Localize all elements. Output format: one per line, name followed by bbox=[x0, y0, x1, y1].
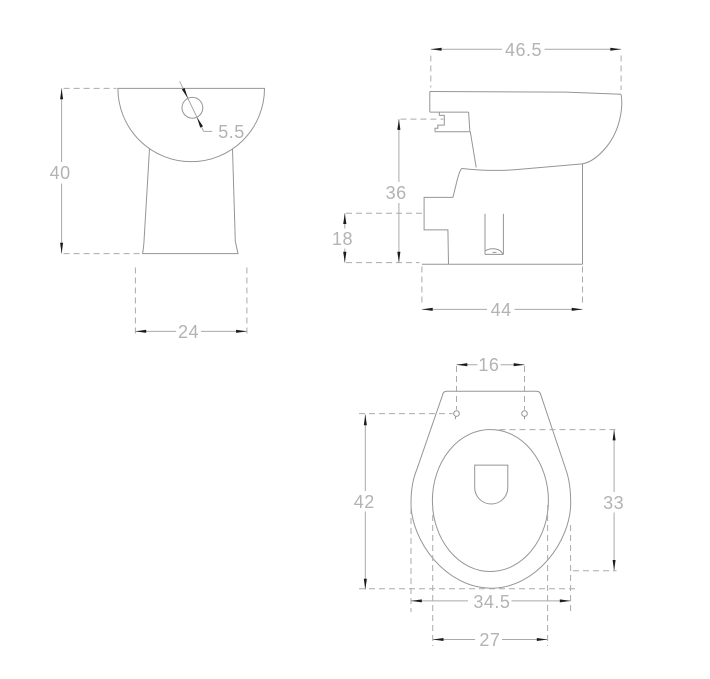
svg-text:27: 27 bbox=[479, 630, 500, 650]
svg-text:42: 42 bbox=[354, 492, 375, 512]
svg-text:36: 36 bbox=[386, 183, 407, 203]
svg-text:34.5: 34.5 bbox=[473, 592, 510, 612]
svg-text:16: 16 bbox=[478, 355, 499, 375]
svg-text:44: 44 bbox=[491, 300, 512, 320]
svg-text:46.5: 46.5 bbox=[505, 40, 542, 60]
svg-text:40: 40 bbox=[50, 163, 71, 183]
svg-text:33: 33 bbox=[603, 493, 624, 513]
svg-text:18: 18 bbox=[332, 229, 353, 249]
svg-text:24: 24 bbox=[178, 322, 199, 342]
svg-text:5.5: 5.5 bbox=[218, 122, 245, 142]
